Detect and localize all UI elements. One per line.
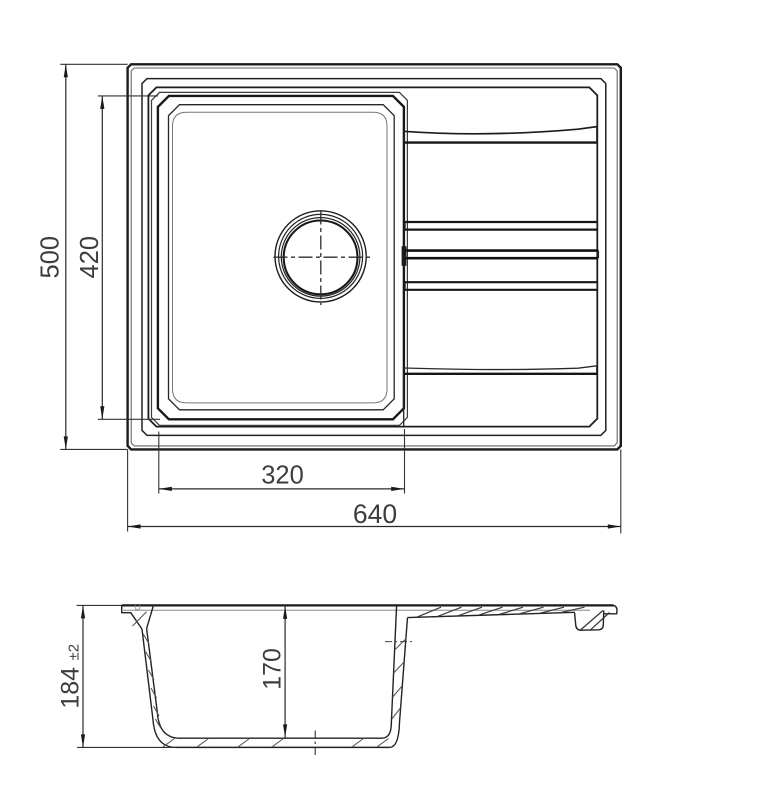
svg-text:184: 184 <box>56 667 84 709</box>
svg-text:640: 640 <box>353 499 397 529</box>
svg-text:500: 500 <box>36 236 64 279</box>
svg-text:320: 320 <box>261 461 304 489</box>
svg-text:170: 170 <box>259 648 287 690</box>
svg-text:420: 420 <box>76 236 104 279</box>
svg-text:±2: ±2 <box>66 644 83 661</box>
